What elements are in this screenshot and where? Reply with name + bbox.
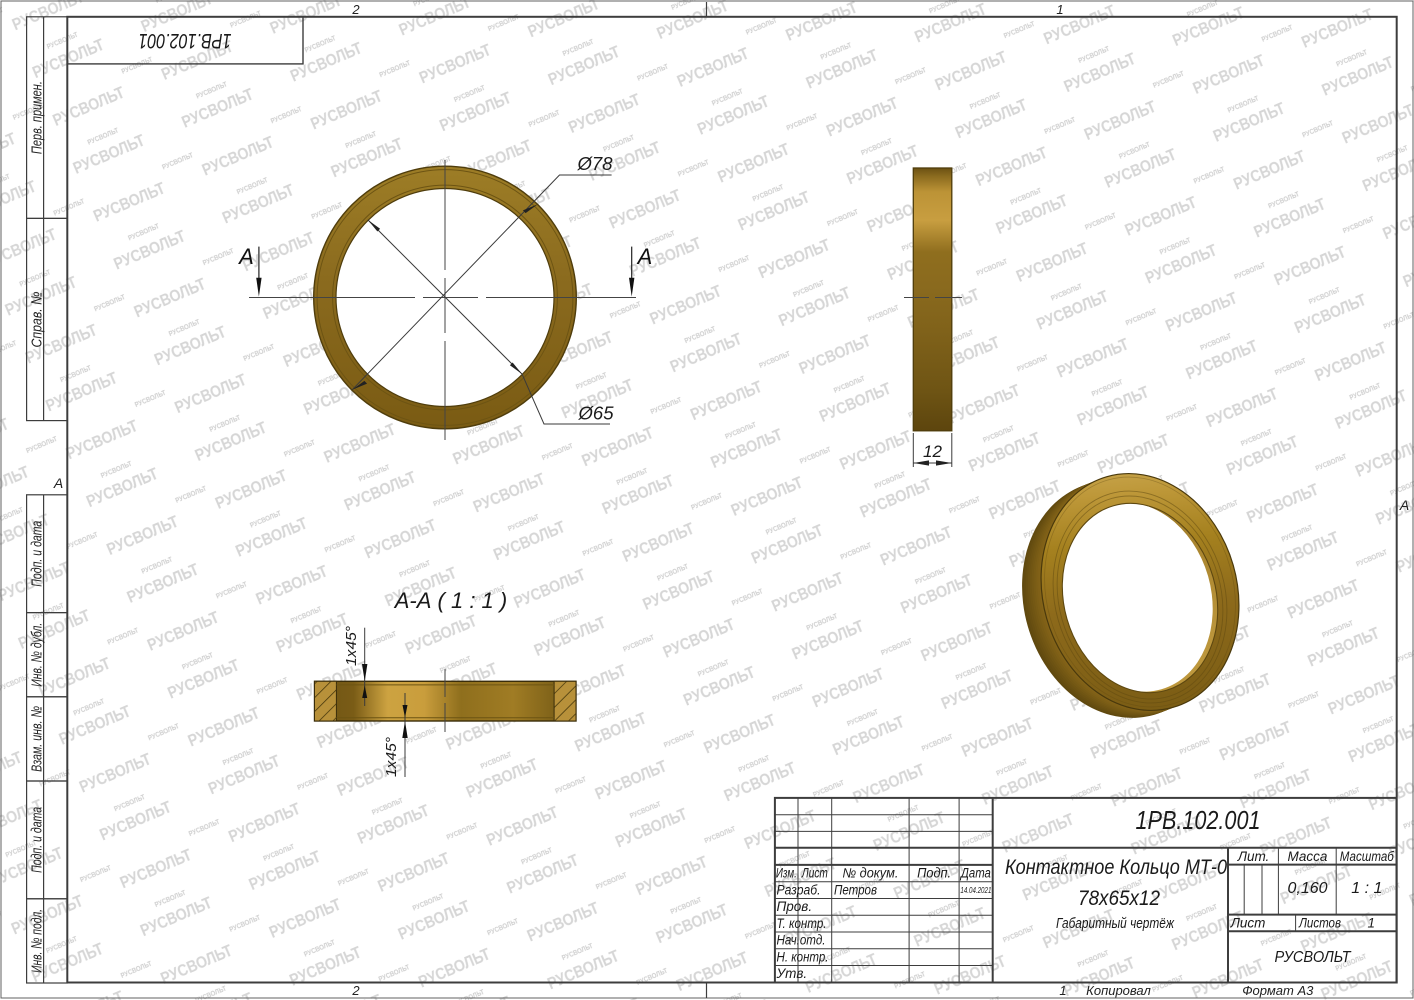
svg-text:Формат А3: Формат А3: [1242, 983, 1314, 998]
svg-text:РУСВОЛЬТ: РУСВОЛЬТ: [1275, 949, 1352, 966]
svg-text:Нач.отд.: Нач.отд.: [777, 933, 826, 948]
svg-text:0,160: 0,160: [1287, 880, 1327, 897]
svg-text:Дата: Дата: [959, 866, 991, 881]
svg-text:Петров: Петров: [834, 882, 877, 897]
svg-text:Габаритный чертёж: Габаритный чертёж: [1056, 916, 1175, 932]
svg-text:1РВ.102.001: 1РВ.102.001: [1136, 805, 1261, 835]
svg-text:Лист: Лист: [801, 866, 828, 881]
svg-text:2: 2: [351, 2, 360, 17]
svg-text:Изм.: Изм.: [776, 866, 797, 881]
svg-text:Справ. №: Справ. №: [28, 292, 45, 348]
svg-text:1: 1: [1059, 983, 1066, 998]
svg-text:Копировал: Копировал: [1086, 983, 1151, 998]
svg-text:А-А ( 1 : 1 ): А-А ( 1 : 1 ): [393, 588, 507, 613]
svg-text:2: 2: [351, 983, 360, 998]
svg-text:Масштаб: Масштаб: [1340, 849, 1394, 864]
svg-text:Подп. и дата: Подп. и дата: [28, 521, 45, 587]
svg-text:А: А: [1399, 497, 1409, 513]
svg-text:78х65х12: 78х65х12: [1078, 887, 1160, 910]
svg-text:Разраб.: Разраб.: [777, 882, 821, 897]
svg-text:1: 1: [1368, 916, 1376, 931]
svg-text:А: А: [636, 244, 653, 269]
svg-text:А: А: [53, 475, 63, 491]
svg-text:Контактное Кольцо МТ-0: Контактное Кольцо МТ-0: [1005, 856, 1227, 879]
svg-text:Листов: Листов: [1298, 916, 1341, 931]
svg-text:Подп.: Подп.: [917, 866, 951, 881]
svg-text:1: 1: [1056, 2, 1063, 17]
svg-text:1х45°: 1х45°: [383, 737, 400, 777]
svg-text:Н. контр.: Н. контр.: [777, 949, 829, 964]
svg-text:А: А: [237, 244, 254, 269]
svg-text:14.04.2021: 14.04.2021: [960, 885, 991, 895]
svg-text:12: 12: [923, 442, 942, 461]
svg-text:Инв. № дубл.: Инв. № дубл.: [28, 623, 45, 687]
svg-text:Ø65: Ø65: [578, 403, 615, 424]
svg-text:Ø78: Ø78: [577, 153, 614, 174]
svg-text:Т. контр.: Т. контр.: [777, 916, 827, 931]
svg-text:Лит.: Лит.: [1237, 849, 1270, 864]
svg-text:Взам. инв. №: Взам. инв. №: [28, 706, 45, 772]
svg-text:Инв. № подл.: Инв. № подл.: [28, 909, 45, 973]
svg-text:№ докум.: № докум.: [842, 866, 898, 881]
svg-text:1х45°: 1х45°: [343, 626, 360, 666]
svg-text:Перв. примен.: Перв. примен.: [28, 81, 45, 154]
svg-text:Утв.: Утв.: [776, 966, 808, 981]
svg-text:1 : 1: 1 : 1: [1351, 880, 1382, 897]
svg-text:Лист: Лист: [1230, 916, 1266, 931]
svg-text:1РВ.102.001: 1РВ.102.001: [139, 29, 232, 52]
svg-text:Пров.: Пров.: [777, 899, 813, 914]
svg-text:Подп. и дата: Подп. и дата: [28, 807, 45, 873]
svg-text:Масса: Масса: [1288, 849, 1328, 864]
